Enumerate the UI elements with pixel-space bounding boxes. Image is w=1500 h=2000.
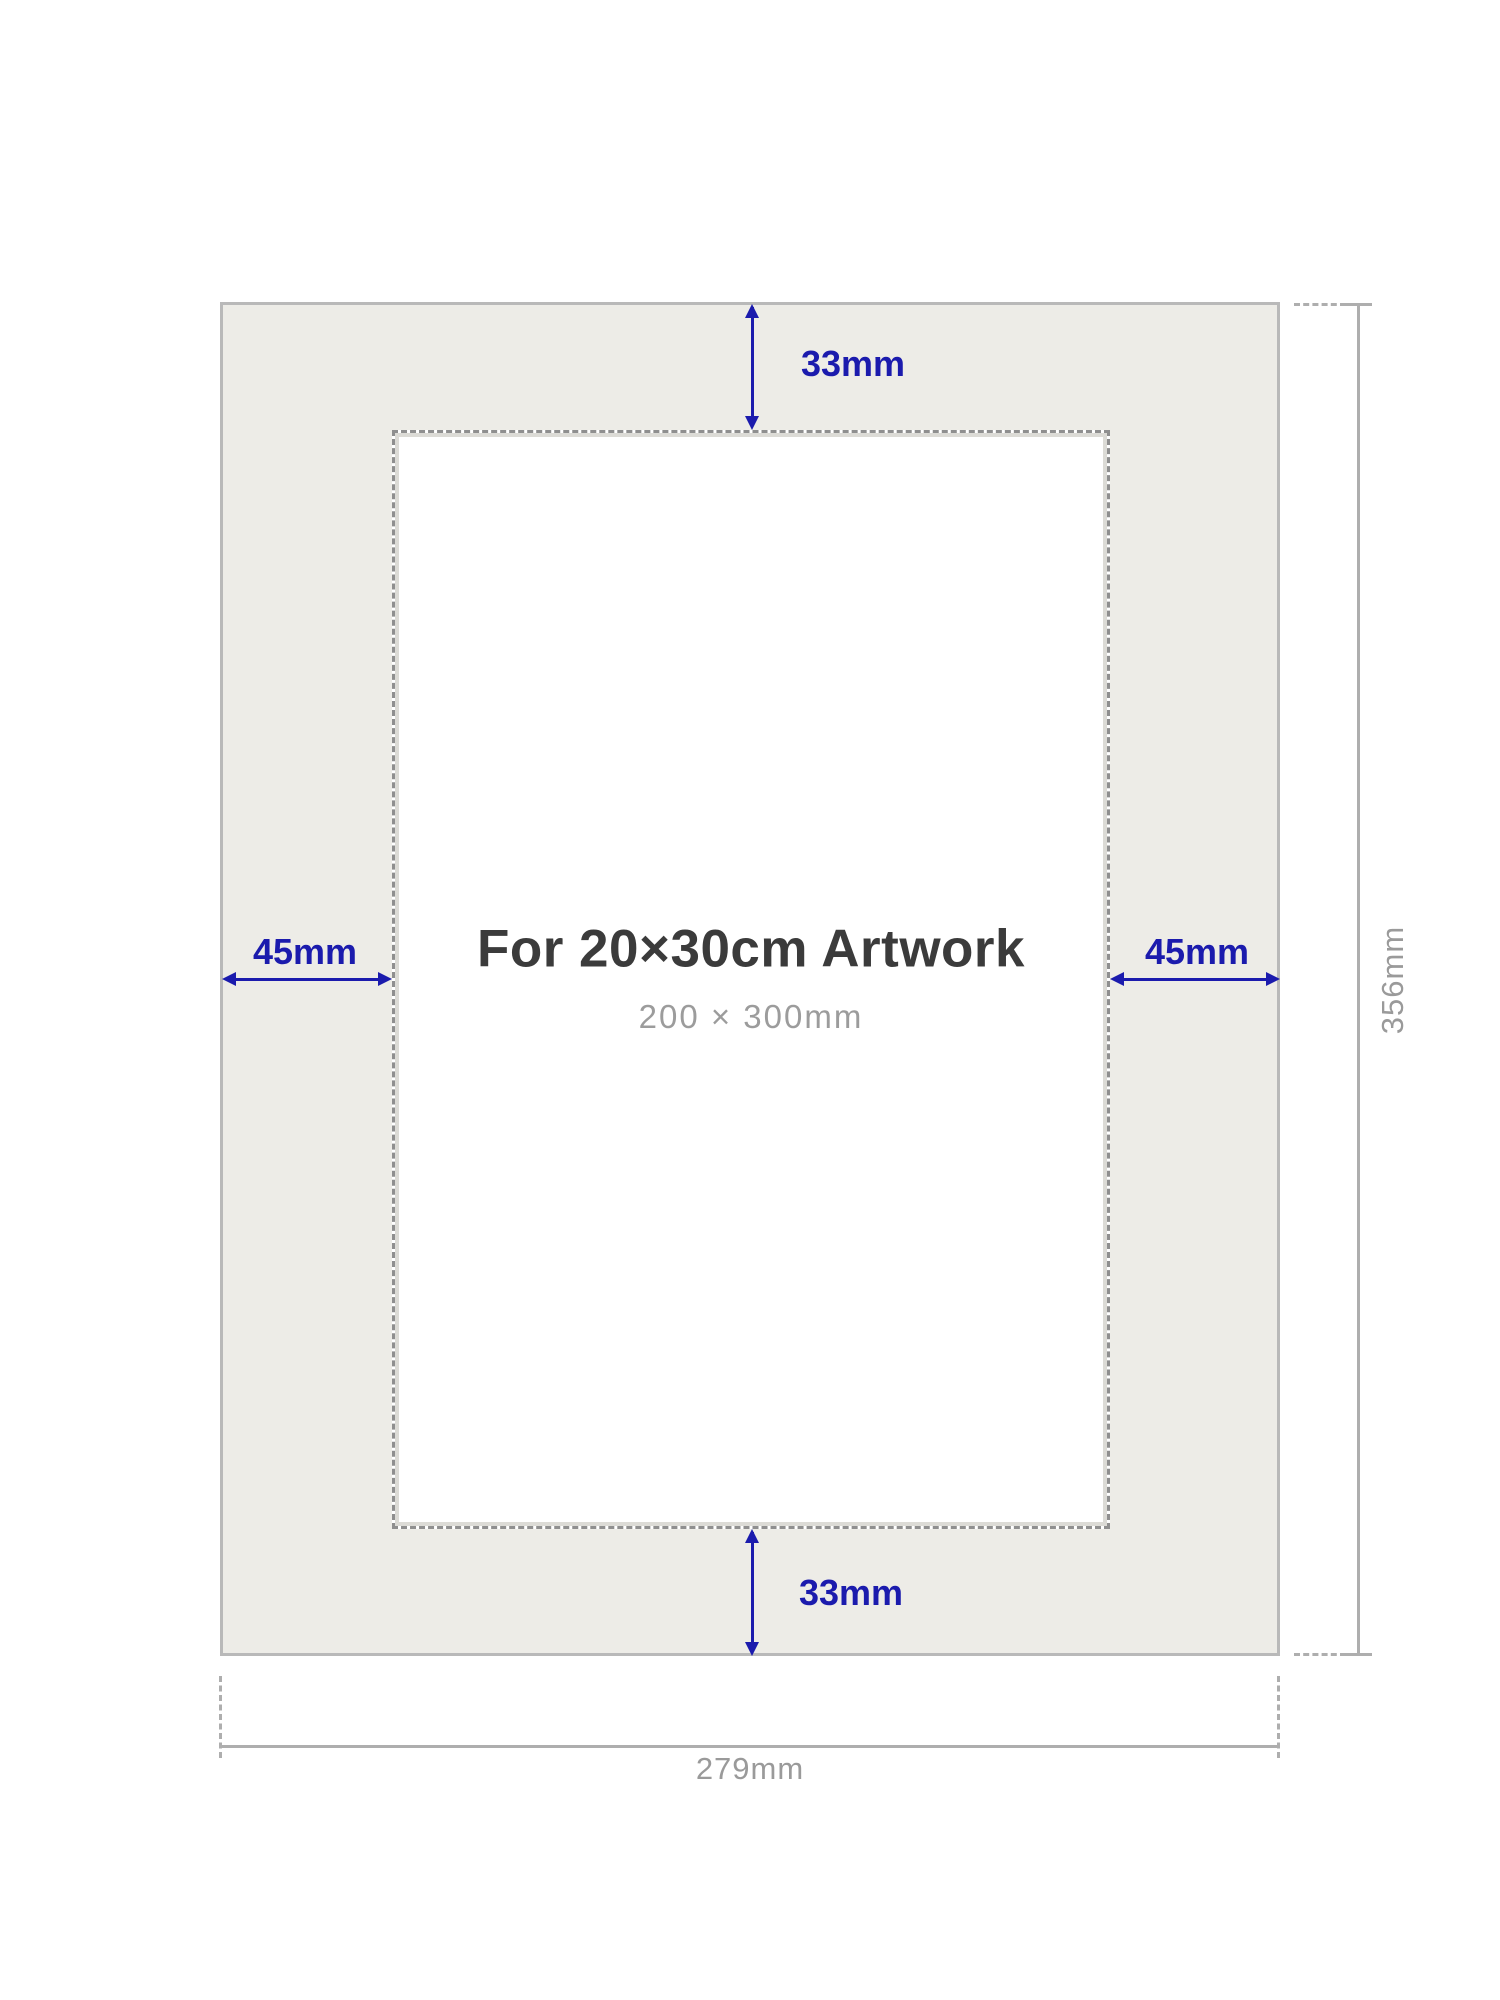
overall-width-left-extension	[219, 1676, 222, 1758]
top-border-arrow-line	[751, 307, 754, 423]
top-border-arrowhead-down-icon	[745, 416, 759, 430]
left-border-arrowhead-left-icon	[222, 972, 236, 986]
artwork-size-subtitle: 200 × 300mm	[639, 998, 864, 1036]
mat-dimension-diagram: For 20×30cm Artwork 200 × 300mm 33mm 33m…	[0, 0, 1500, 2000]
top-border-dimension-label: 33mm	[801, 343, 905, 385]
overall-height-bottom-cap	[1345, 1653, 1372, 1656]
bottom-border-arrow-line	[751, 1532, 754, 1648]
overall-width-right-extension	[1277, 1676, 1280, 1758]
overall-height-label: 356mm	[1375, 926, 1411, 1034]
overall-width-label: 279mm	[696, 1751, 804, 1787]
right-border-dimension-label: 45mm	[1145, 931, 1249, 973]
top-border-arrowhead-up-icon	[745, 304, 759, 318]
right-border-arrowhead-right-icon	[1266, 972, 1280, 986]
left-border-arrowhead-right-icon	[378, 972, 392, 986]
overall-height-top-extension	[1294, 303, 1346, 306]
left-border-dimension-label: 45mm	[253, 931, 357, 973]
artwork-window	[392, 430, 1110, 1529]
right-border-arrowhead-left-icon	[1110, 972, 1124, 986]
right-border-arrow-line	[1115, 978, 1275, 981]
overall-height-dimension-line	[1357, 303, 1360, 1656]
bottom-border-arrowhead-down-icon	[745, 1642, 759, 1656]
bottom-border-dimension-label: 33mm	[799, 1572, 903, 1614]
artwork-size-title: For 20×30cm Artwork	[477, 919, 1025, 980]
overall-height-bottom-extension	[1294, 1653, 1346, 1656]
bottom-border-arrowhead-up-icon	[745, 1529, 759, 1543]
overall-width-dimension-line	[221, 1745, 1280, 1748]
overall-height-top-cap	[1345, 303, 1372, 306]
left-border-arrow-line	[227, 978, 387, 981]
